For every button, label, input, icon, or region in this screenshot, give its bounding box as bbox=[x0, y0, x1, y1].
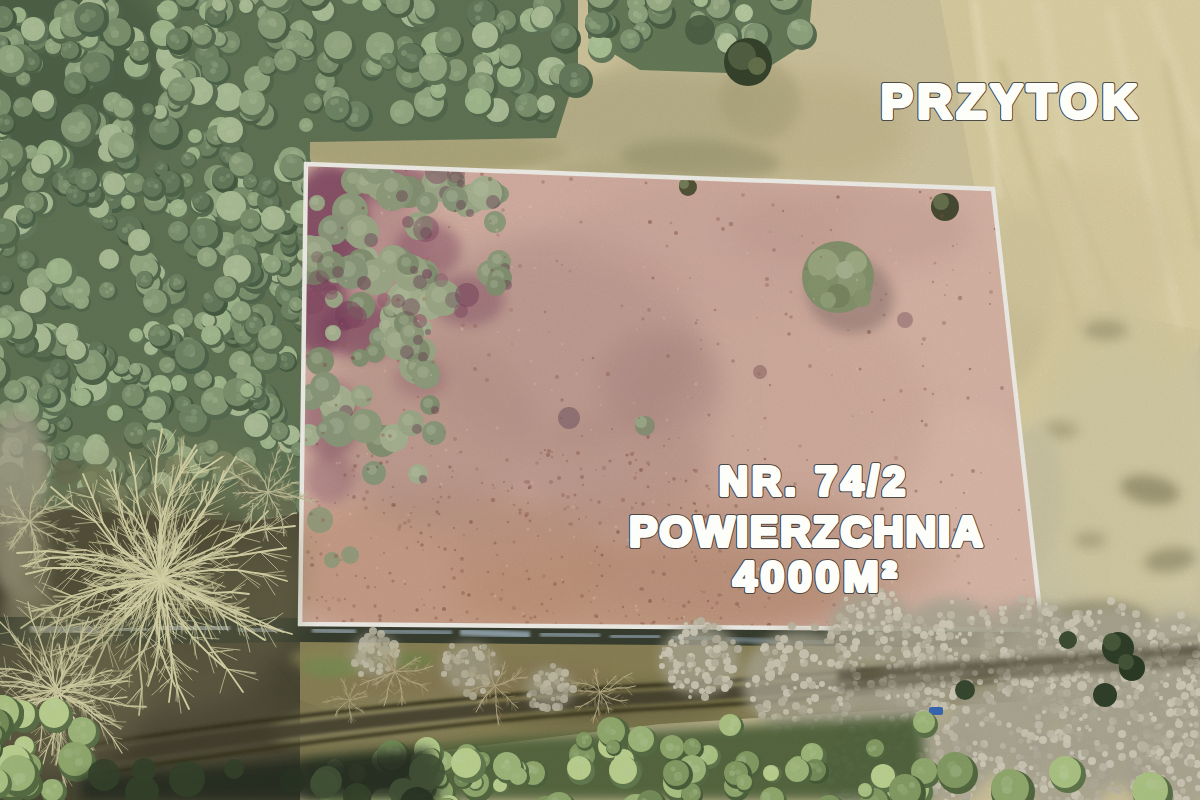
svg-text:PRZYTOK: PRZYTOK bbox=[881, 75, 1142, 128]
svg-text:NR. 74/2: NR. 74/2 bbox=[719, 459, 909, 503]
svg-text:4000M²: 4000M² bbox=[733, 553, 901, 600]
svg-text:POWIERZCHNIA: POWIERZCHNIA bbox=[629, 508, 984, 555]
